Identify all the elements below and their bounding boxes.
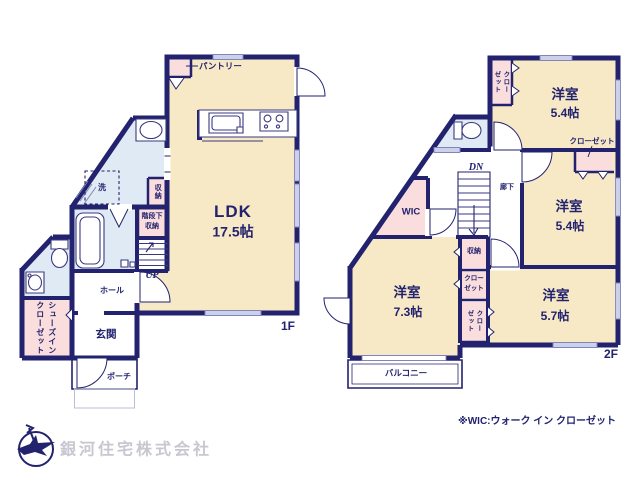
bedroom4-size-label: 7.3帖 [394,305,423,319]
stairs-1f-icon [138,238,168,271]
porch-balcony [72,358,462,408]
closet-bedroom2 [575,150,612,172]
porch-label: ポーチ [107,372,131,382]
pantry-label: パントリー [199,61,242,71]
closet2-pointer-label: クローゼット [570,137,615,146]
bedroom-3 [488,267,618,345]
balcony-label: バルコニー [385,368,427,378]
closet-mid-label-line1: クロー [464,275,484,283]
shoes-closet-label-col1: シューズイン [47,301,57,355]
bedroom1-size-label: 5.4帖 [551,106,580,120]
stove-icon [260,112,288,131]
floor2-label: 2F [604,347,618,361]
under-stairs-label-line1: 階段下 [142,213,163,221]
shoes-closet-label-col2: クローゼット [35,301,45,355]
company-logo-bird-icon [13,422,59,470]
wic-label: WIC [402,206,420,217]
bedroom2-size-label: 5.4帖 [556,219,585,233]
bedroom1-label: 洋室 [552,87,579,103]
ldk-exterior-door-arc [297,68,325,96]
bedroom4-exterior-door-arc [324,298,350,324]
pantry-closet [168,59,191,77]
closet1-label-col2: ゼット [492,71,500,94]
bedroom4-label: 洋室 [394,285,421,301]
kitchen-sink-icon [209,113,243,133]
ldk-size-label: 17.5帖 [212,224,253,241]
toilet-room-basin-icon [26,272,44,293]
hall-label: ホール [100,286,124,296]
storage-2f-label: 収納 [467,248,481,256]
bedroom3-label: 洋室 [543,288,570,304]
bedroom2-label: 洋室 [556,199,583,215]
entrance-label: 玄関 [96,329,117,342]
closet1-label-col1: クロー [501,71,509,94]
storage-1f-label: 収納 [153,184,161,200]
porch-step [75,389,135,408]
floorplan-drawing [0,0,640,480]
company-name: 銀河住宅株式会社 [60,440,212,459]
laundry-label: 洗 [98,183,106,193]
floorplan-page: パントリー LDK 17.5帖 洗 収納 階段下 収納 UP ホール 玄関 シュ… [0,0,640,480]
corridor-label: 廊下 [500,184,514,192]
floor1-label: 1F [281,319,295,333]
toilet-2f-icon [454,122,481,139]
washbasin-icon [136,119,166,141]
closet-v-label-col1: クロー [474,310,482,333]
closet-mid-label-line2: ゼット [464,285,484,293]
ldk-label: LDK [214,202,252,222]
stairs-dn-label: DN [469,162,483,174]
bedroom3-size-label: 5.7帖 [541,309,570,323]
stairs-up-label: UP [145,270,158,282]
closet-v-label-col2: ゼット [465,310,473,333]
wic-note: ※WIC:ウォーク イン クローゼット [458,416,616,428]
toilet-1f-icon [51,240,68,268]
under-stairs-label-line2: 収納 [145,223,159,231]
